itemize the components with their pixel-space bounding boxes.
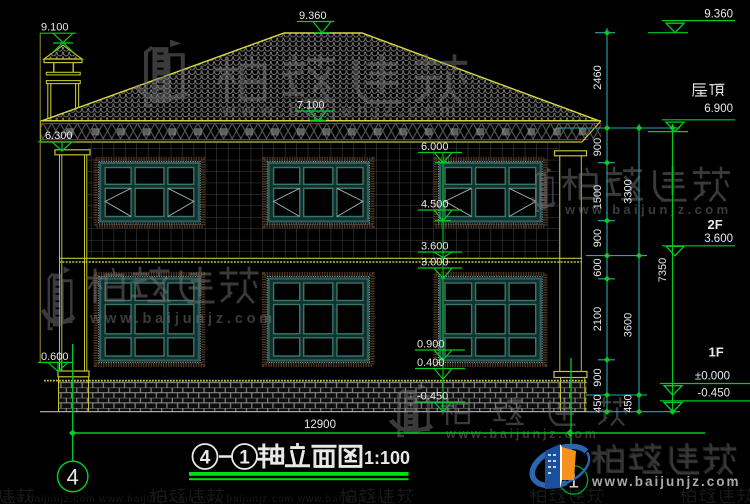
svg-text:9.360: 9.360	[299, 10, 327, 22]
svg-text:3300: 3300	[623, 179, 635, 203]
svg-text:1:100: 1:100	[364, 448, 410, 468]
svg-text:www.baijunjz.com: www.baijunjz.com	[445, 427, 599, 441]
svg-text:7.100: 7.100	[297, 100, 325, 112]
svg-text:3600: 3600	[623, 313, 635, 337]
svg-text:6.000: 6.000	[421, 141, 449, 153]
svg-text:-0.450: -0.450	[697, 388, 730, 400]
svg-text:4: 4	[67, 465, 79, 490]
svg-text:±0.000: ±0.000	[695, 371, 730, 383]
svg-text:6.900: 6.900	[704, 103, 733, 115]
svg-text:www.baijunjz.com: www.baijunjz.com	[564, 202, 732, 217]
svg-text:9.360: 9.360	[704, 9, 733, 21]
svg-text:6.300: 6.300	[45, 130, 73, 142]
svg-text:7350: 7350	[657, 258, 669, 282]
svg-text:9.100: 9.100	[41, 22, 69, 34]
svg-text:450: 450	[623, 394, 635, 412]
svg-text:1500: 1500	[592, 185, 604, 209]
svg-text:4.500: 4.500	[421, 199, 449, 211]
svg-text:3.600: 3.600	[421, 241, 449, 253]
svg-text:-0.450: -0.450	[417, 391, 448, 403]
svg-text:www.baijunjz.com: www.baijunjz.com	[221, 100, 461, 120]
svg-text:900: 900	[592, 229, 604, 247]
svg-text:900: 900	[592, 368, 604, 386]
svg-text:2460: 2460	[592, 65, 604, 89]
svg-text:www.baijunjz.com www.baijunjz: www.baijunjz.com www.baijunjz.com www.ba…	[0, 494, 393, 504]
svg-text:0.900: 0.900	[417, 339, 445, 351]
svg-text:600: 600	[592, 258, 604, 276]
svg-text:1F: 1F	[709, 345, 724, 360]
svg-text:1: 1	[239, 448, 250, 469]
svg-text:12900: 12900	[304, 419, 336, 431]
svg-text:2100: 2100	[592, 307, 604, 331]
svg-text:450: 450	[592, 394, 604, 412]
svg-text:3.600: 3.600	[704, 233, 733, 245]
svg-text:0.600: 0.600	[41, 351, 69, 363]
svg-text:4: 4	[200, 448, 211, 469]
svg-text:www.baijunjz.com: www.baijunjz.com	[591, 474, 741, 489]
svg-text:2F: 2F	[708, 217, 723, 232]
svg-text:0.400: 0.400	[417, 357, 445, 369]
svg-text:www.baijunjz.com: www.baijunjz.com	[89, 311, 276, 327]
svg-text:900: 900	[592, 138, 604, 156]
svg-text:3.000: 3.000	[421, 257, 449, 269]
